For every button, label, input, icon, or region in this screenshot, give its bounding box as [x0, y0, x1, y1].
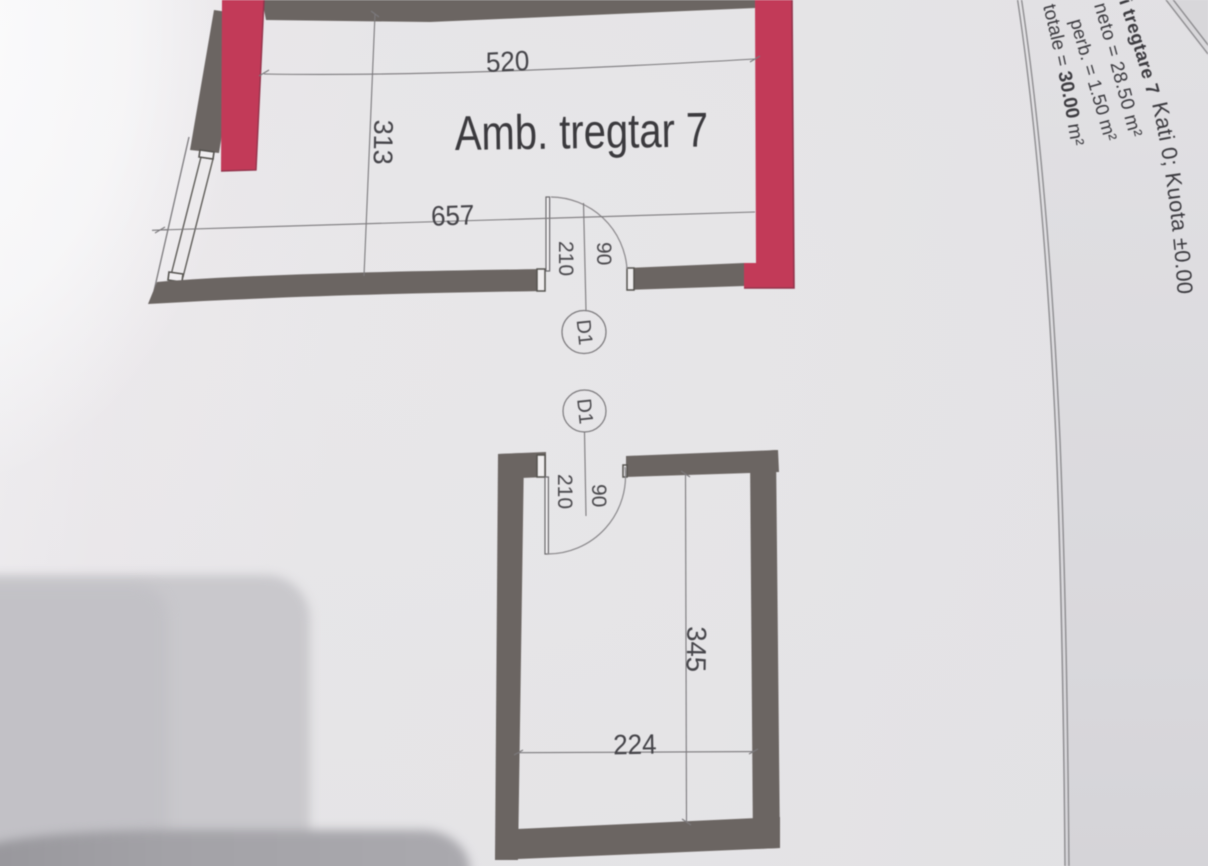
svg-text:520: 520 — [485, 45, 530, 78]
svg-text:224: 224 — [613, 729, 657, 761]
svg-text:D1: D1 — [572, 319, 597, 347]
svg-text:313: 313 — [368, 119, 399, 165]
svg-text:D1: D1 — [572, 398, 597, 426]
svg-text:210: 210 — [554, 241, 577, 276]
svg-text:657: 657 — [430, 199, 474, 232]
svg-text:Kati 0; Kuota ±0.00: Kati 0; Kuota ±0.00 — [1147, 99, 1198, 295]
svg-text:90: 90 — [592, 242, 615, 265]
svg-text:345: 345 — [681, 626, 713, 672]
svg-text:210: 210 — [553, 474, 576, 509]
svg-text:Amb. tregtar 7: Amb. tregtar 7 — [454, 104, 708, 161]
svg-text:90: 90 — [587, 484, 610, 507]
